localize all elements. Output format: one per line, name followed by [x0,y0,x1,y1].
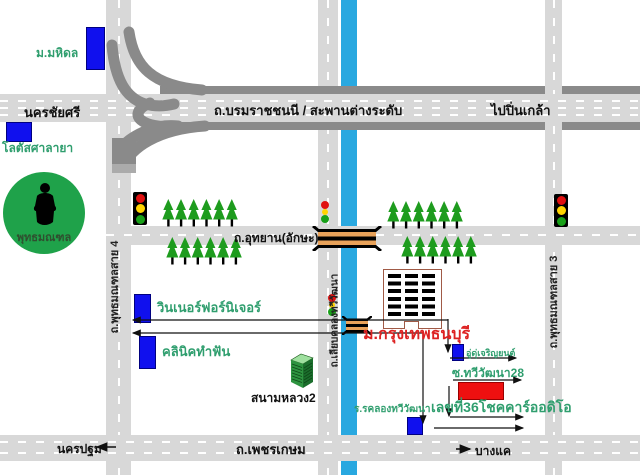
sanam-luang-label: สนามหลวง2 [251,389,316,408]
to-pin-klao-label: ไปปิ่นเกล้า [491,100,551,121]
to-nakhon-pathom-label: นครปฐม [57,440,102,459]
liap-khlong-road-label: ถ.เลียบคลองทวีวัฒนา [328,246,343,396]
mahidol-label: ม.มหิดล [36,44,78,63]
school-label: ร.รคลองทวีวัฒนา [354,402,431,417]
lotus-label: โลตัสศาลายา [2,139,73,158]
dental-clinic-label: คลินิคทำฟัน [162,341,230,362]
garage-label: อู่ดุ่เจริญยนต์ [466,346,515,360]
to-bang-khae-label: บางแค [475,442,511,461]
nakhon-chai-si-label: นครชัยศรี [24,102,80,123]
direction-map: พุทธมณฑล [0,0,640,475]
sai3-road-label: ถ.พุทธมณฑลสาย 3 [544,237,562,367]
utthayan-road-label: ถ.อุทยาน(อักษะ) [234,229,319,248]
winner-furniture-label: วินเนอร์ฟอร์นิเจอร์ [157,297,261,318]
soi-thawiwatthana-28-label: ซ.ทวีวัฒนา28 [452,364,524,383]
sai4-road-label: ถ.พุทธมณฑลสาย 4 [105,222,123,352]
phetkasem-road-label: ถ.เพชรเกษม [236,439,306,460]
chok-car-audio-label: เลขที่36โชคคาร์ออดิโอ [431,397,572,419]
university-label: ม.กรุงเทพธนบุรี [363,322,470,347]
borommaratchachonnani-label: ถ.บรมราชชนนี / สะพานต่างระดับ [214,100,402,121]
